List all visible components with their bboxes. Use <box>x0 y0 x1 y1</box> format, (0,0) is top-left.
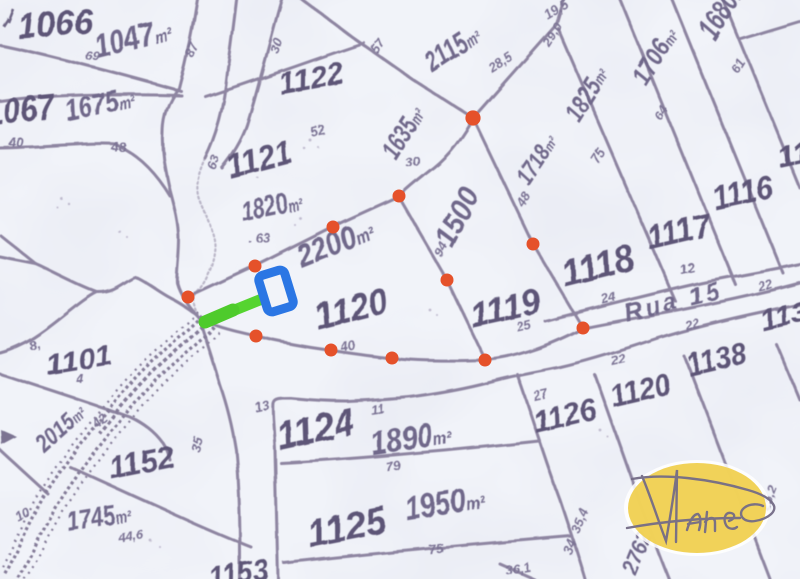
svg-text:. 63: . 63 <box>248 230 270 245</box>
svg-text:11: 11 <box>369 400 384 417</box>
svg-text:1067: 1067 <box>0 85 58 133</box>
svg-text:69: 69 <box>85 48 100 63</box>
svg-text:75: 75 <box>427 540 444 557</box>
svg-text:48: 48 <box>110 139 126 154</box>
svg-text:4: 4 <box>75 371 84 386</box>
svg-text:40: 40 <box>338 337 356 354</box>
svg-text:1066: 1066 <box>16 0 96 46</box>
svg-text:40: 40 <box>8 135 24 150</box>
svg-text:79: 79 <box>384 457 401 474</box>
